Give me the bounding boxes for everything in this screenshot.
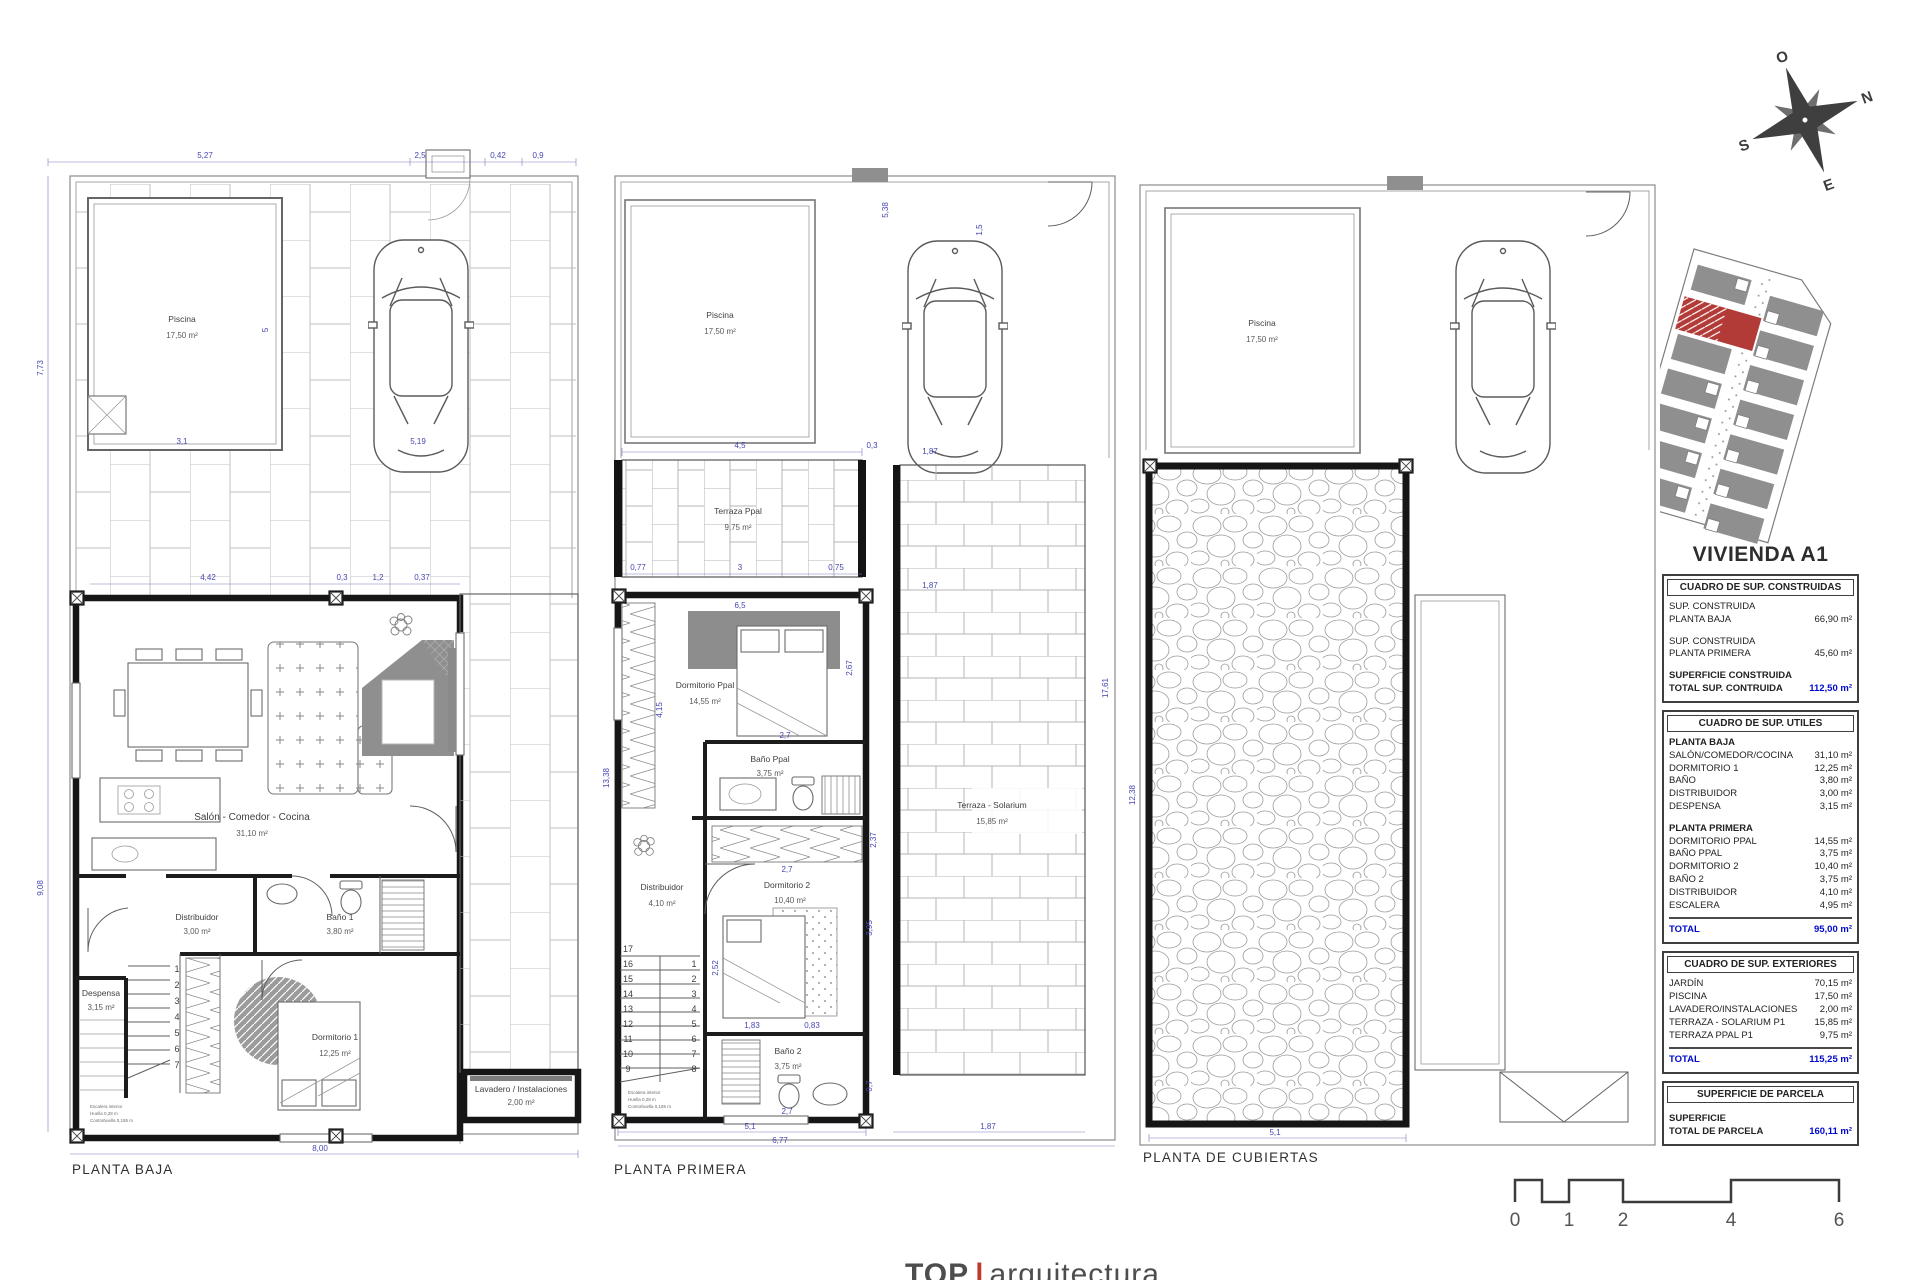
- svg-text:8,00: 8,00: [312, 1144, 328, 1153]
- svg-text:Dormitorio 2: Dormitorio 2: [764, 880, 811, 890]
- svg-text:13: 13: [623, 1004, 633, 1014]
- floorplan-planta-primera: Piscina 17,50 m² Terraza Ppal 9,75 m² Te…: [600, 128, 1130, 1188]
- svg-text:0,3: 0,3: [866, 441, 878, 450]
- svg-text:3,75 m²: 3,75 m²: [756, 769, 783, 778]
- row-label: DISTRIBUIDOR: [1669, 887, 1737, 900]
- svg-text:0,77: 0,77: [630, 563, 646, 572]
- total-label: SUPERFICIE CONSTRUIDA: [1669, 670, 1792, 683]
- svg-text:4,42: 4,42: [200, 573, 216, 582]
- svg-text:17,61: 17,61: [1101, 677, 1110, 698]
- pillar-post: [860, 590, 873, 603]
- floorplan-planta-cubiertas: Piscina 17,50 m² 12,38 5,1 PLANTA DE CUB…: [1125, 150, 1670, 1180]
- svg-text:2,7: 2,7: [781, 1107, 793, 1116]
- svg-text:17: 17: [623, 944, 633, 954]
- row-label: JARDÍN: [1669, 978, 1703, 991]
- dormitorio1-label: Dormitorio 1: [312, 1032, 359, 1042]
- row-label: BAÑO: [1669, 775, 1696, 788]
- svg-text:0,3: 0,3: [336, 573, 348, 582]
- total-value: 95,00 m²: [1814, 924, 1852, 937]
- row-label: SALÓN/COMEDOR/COCINA: [1669, 750, 1793, 763]
- svg-text:1,87: 1,87: [980, 1122, 996, 1131]
- row-label: TERRAZA PPAL P1: [1669, 1030, 1753, 1043]
- svg-text:6: 6: [174, 1044, 179, 1054]
- compass-south: S: [1737, 136, 1752, 155]
- window: [724, 1116, 808, 1124]
- row-value: 17,50 m²: [1815, 991, 1853, 1004]
- svg-text:5,27: 5,27: [197, 151, 213, 160]
- pillar-post: [330, 1130, 343, 1143]
- pillar-post: [613, 1115, 626, 1128]
- firm-logo: TOP|arquitectura: [905, 1258, 1160, 1280]
- svg-text:Dormitorio Ppal: Dormitorio Ppal: [676, 680, 735, 690]
- pillar-post: [330, 592, 343, 605]
- distribuidor-label: Distribuidor: [176, 912, 219, 922]
- svg-text:10,40 m²: 10,40 m²: [774, 896, 806, 905]
- door-arc-entry: [1586, 192, 1630, 236]
- table-constructed: CUADRO DE SUP. CONSTRUIDAS SUP. CONSTRUI…: [1662, 574, 1859, 703]
- group-title: PLANTA PRIMERA: [1667, 823, 1854, 836]
- row-value: 2,00 m²: [1820, 1004, 1852, 1017]
- svg-text:7: 7: [174, 1060, 179, 1070]
- drawing-sheet: Piscina 17,50 m² 5,27 2,5 0,42 0,9 4,42 …: [0, 0, 1920, 1280]
- svg-text:16: 16: [623, 959, 633, 969]
- svg-text:5,1: 5,1: [744, 1122, 756, 1131]
- room-dormitorio2: Dormitorio 2 10,40 m²: [723, 880, 837, 1018]
- row-value: 31,10 m²: [1815, 750, 1853, 763]
- table-constructed-header: CUADRO DE SUP. CONSTRUIDAS: [1667, 579, 1854, 596]
- svg-text:6,5: 6,5: [734, 601, 746, 610]
- total-label: TOTAL SUP. CONTRUIDA: [1669, 683, 1783, 696]
- door-arc-entry: [1048, 182, 1092, 226]
- row-value: 14,55 m²: [1815, 836, 1853, 849]
- svg-text:4: 4: [174, 1012, 179, 1022]
- svg-text:5: 5: [691, 1019, 696, 1029]
- svg-text:0,37: 0,37: [414, 573, 430, 582]
- pool-label: Piscina: [168, 314, 196, 324]
- svg-text:1,87: 1,87: [922, 581, 938, 590]
- wardrobe: [622, 603, 655, 808]
- svg-text:9,08: 9,08: [36, 880, 45, 896]
- svg-text:Contrahuella 0,185 m: Contrahuella 0,185 m: [90, 1118, 133, 1123]
- svg-text:1: 1: [174, 964, 179, 974]
- gate-box: [852, 168, 888, 182]
- row-value: 10,40 m²: [1815, 861, 1853, 874]
- scale-label: 1: [1564, 1210, 1575, 1231]
- row-value: 4,95 m²: [1820, 900, 1852, 913]
- salon-label: Salón - Comedor - Cocina: [194, 812, 310, 823]
- svg-text:13,38: 13,38: [602, 767, 611, 788]
- room-terraza-ppal: Terraza Ppal 9,75 m²: [614, 460, 866, 577]
- svg-text:0,83: 0,83: [804, 1021, 820, 1030]
- unit-title: VIVIENDA A1: [1662, 543, 1859, 567]
- svg-text:2: 2: [174, 980, 179, 990]
- svg-text:11: 11: [623, 1034, 632, 1044]
- staircase: 17 16 15 14 13 12 11 10 9 1 2 3 4 5 6 7 …: [620, 944, 700, 1109]
- svg-text:14: 14: [623, 989, 633, 999]
- lavadero-label: Lavadero / Instalaciones: [475, 1084, 567, 1094]
- site-location-map: [1660, 235, 1910, 545]
- svg-text:0,9: 0,9: [532, 151, 544, 160]
- total-value: 115,25 m²: [1809, 1054, 1852, 1067]
- table-parcela-header: SUPERFICIE DE PARCELA: [1667, 1086, 1854, 1103]
- svg-text:Terraza Ppal: Terraza Ppal: [714, 506, 762, 516]
- counter-sink: [92, 838, 216, 870]
- row-label: DISTRIBUIDOR: [1669, 788, 1737, 801]
- row-value: 3,15 m²: [1820, 801, 1852, 814]
- scale-label: 0: [1510, 1210, 1521, 1231]
- svg-text:5,38: 5,38: [881, 202, 890, 218]
- group-title: PLANTA BAJA: [1667, 737, 1854, 750]
- svg-text:2: 2: [691, 974, 696, 984]
- svg-text:Piscina: Piscina: [706, 310, 734, 320]
- svg-text:3,95: 3,95: [865, 920, 874, 936]
- svg-text:1: 1: [691, 959, 696, 969]
- despensa-area: 3,15 m²: [87, 1003, 114, 1012]
- total-label: SUPERFICIE: [1669, 1113, 1726, 1126]
- gate-box: [1387, 176, 1423, 190]
- area-summary-panel: VIVIENDA A1 CUADRO DE SUP. CONSTRUIDAS S…: [1662, 543, 1859, 1153]
- logo-top: TOP: [905, 1258, 969, 1280]
- svg-text:1,87: 1,87: [922, 447, 938, 456]
- pillar-post: [71, 592, 84, 605]
- svg-text:5,1: 5,1: [1269, 1128, 1281, 1137]
- svg-text:10: 10: [623, 1049, 633, 1059]
- svg-text:Huella 0,28 m: Huella 0,28 m: [628, 1097, 656, 1102]
- row-label: DORMITORIO 1: [1669, 763, 1739, 776]
- row-value: 15,85 m²: [1815, 1017, 1853, 1030]
- salon-area: 31,10 m²: [236, 829, 268, 838]
- pillar-post: [1144, 460, 1157, 473]
- svg-text:Baño Ppal: Baño Ppal: [750, 754, 789, 764]
- svg-text:2,5: 2,5: [414, 151, 426, 160]
- scale-bar: 0 1 2 4 6: [1505, 1162, 1865, 1237]
- car-icon: [1450, 241, 1556, 473]
- svg-text:1,5: 1,5: [975, 224, 984, 236]
- svg-text:3: 3: [174, 996, 179, 1006]
- row-value: 4,10 m²: [1820, 887, 1852, 900]
- compass-rose: O N E S: [1735, 42, 1875, 192]
- svg-text:17,50 m²: 17,50 m²: [1246, 335, 1278, 344]
- svg-text:12,38: 12,38: [1128, 784, 1137, 805]
- gravel-roof: [1149, 466, 1406, 1124]
- scale-label: 4: [1726, 1210, 1737, 1231]
- row-label: PISCINA: [1669, 991, 1707, 1004]
- table-utiles-header: CUADRO DE SUP. UTILES: [1667, 715, 1854, 732]
- svg-text:5,19: 5,19: [410, 437, 426, 446]
- svg-text:4,5: 4,5: [734, 441, 746, 450]
- despensa-label: Despensa: [82, 988, 121, 998]
- compass-north: N: [1859, 88, 1875, 108]
- row-value: 3,80 m²: [1820, 775, 1852, 788]
- svg-text:Escalera interior: Escalera interior: [628, 1090, 661, 1095]
- row-label: ESCALERA: [1669, 900, 1720, 913]
- table-parcela: SUPERFICIE DE PARCELA SUPERFICIE TOTAL D…: [1662, 1081, 1859, 1146]
- total-value: 112,50 m²: [1809, 683, 1852, 696]
- row-value: 3,00 m²: [1820, 788, 1852, 801]
- svg-text:7,73: 7,73: [36, 360, 45, 376]
- scale-label: 6: [1834, 1210, 1845, 1231]
- pool: Piscina 17,50 m²: [1165, 208, 1360, 453]
- svg-text:4,10 m²: 4,10 m²: [648, 899, 675, 908]
- svg-text:3: 3: [691, 989, 696, 999]
- svg-text:9: 9: [625, 1064, 630, 1074]
- svg-text:3: 3: [738, 563, 743, 572]
- logo-separator: |: [969, 1258, 989, 1280]
- lower-roof: [1415, 595, 1505, 1070]
- row-value: 12,25 m²: [1815, 763, 1853, 776]
- row-value: 3,75 m²: [1820, 848, 1852, 861]
- pool: Piscina 17,50 m²: [625, 200, 815, 443]
- svg-text:Distribuidor: Distribuidor: [641, 882, 684, 892]
- svg-text:5: 5: [261, 327, 270, 332]
- svg-text:Terraza - Solarium: Terraza - Solarium: [957, 800, 1026, 810]
- svg-text:2,37: 2,37: [869, 832, 878, 848]
- svg-text:Piscina: Piscina: [1248, 318, 1276, 328]
- caption-planta-cubiertas: PLANTA DE CUBIERTAS: [1143, 1150, 1319, 1165]
- row-label: DORMITORIO PPAL: [1669, 836, 1757, 849]
- svg-text:6: 6: [691, 1034, 696, 1044]
- total-label: TOTAL: [1669, 1054, 1700, 1067]
- svg-text:12: 12: [623, 1019, 633, 1029]
- svg-text:2,7: 2,7: [779, 731, 791, 740]
- row-label: TERRAZA - SOLARIUM P1: [1669, 1017, 1785, 1030]
- svg-text:14,55 m²: 14,55 m²: [689, 697, 721, 706]
- drain: [88, 396, 126, 434]
- svg-text:9,75 m²: 9,75 m²: [724, 523, 751, 532]
- svg-text:15,85 m²: 15,85 m²: [976, 817, 1008, 826]
- pillar-post: [860, 1115, 873, 1128]
- driveway: [460, 594, 578, 1072]
- svg-text:17,50 m²: 17,50 m²: [704, 327, 736, 336]
- pillar-post: [1400, 460, 1413, 473]
- pillar-post: [71, 1130, 84, 1143]
- room-bano-ppal: Baño Ppal 3,75 m²: [692, 742, 866, 818]
- logo-arquitectura: arquitectura: [990, 1258, 1160, 1280]
- dormitorio1-area: 12,25 m²: [319, 1049, 351, 1058]
- total-value: 160,11 m²: [1809, 1126, 1852, 1139]
- row-label: PLANTA PRIMERA: [1669, 648, 1751, 661]
- dining-table: [114, 649, 262, 761]
- scale-label: 2: [1618, 1210, 1629, 1231]
- table-exteriores-header: CUADRO DE SUP. EXTERIORES: [1667, 956, 1854, 973]
- table-utiles: CUADRO DE SUP. UTILES PLANTA BAJA SALÓN/…: [1662, 710, 1859, 944]
- svg-text:4: 4: [691, 1004, 696, 1014]
- svg-text:0,7: 0,7: [865, 1080, 874, 1092]
- row-label: LAVADERO/INSTALACIONES: [1669, 1004, 1797, 1017]
- wardrobe: [186, 958, 220, 1093]
- row-value: 9,75 m²: [1820, 1030, 1852, 1043]
- bed: [737, 626, 827, 736]
- svg-text:Escalera interior: Escalera interior: [90, 1104, 123, 1109]
- room-bano2: Baño 2 3,75 m²: [705, 1034, 866, 1108]
- svg-text:1,2: 1,2: [372, 573, 384, 582]
- row-value: 3,75 m²: [1820, 874, 1852, 887]
- distribuidor-area: 3,00 m²: [183, 927, 210, 936]
- row-value: 66,90 m²: [1815, 614, 1853, 627]
- door-arc-dorm2: [705, 864, 755, 914]
- svg-text:2,52: 2,52: [711, 960, 720, 976]
- svg-text:Baño 2: Baño 2: [775, 1046, 802, 1056]
- svg-text:3,1: 3,1: [176, 437, 188, 446]
- row-label: BAÑO 2: [1669, 874, 1704, 887]
- valley-roof: [1500, 1072, 1628, 1122]
- svg-text:2,7: 2,7: [781, 865, 793, 874]
- plant-icon: [634, 835, 655, 855]
- row-label: SUP. CONSTRUIDA: [1669, 601, 1755, 614]
- row-label: DESPENSA: [1669, 801, 1721, 814]
- bed: [723, 916, 805, 1018]
- svg-text:3,75 m²: 3,75 m²: [774, 1062, 801, 1071]
- compass-west: O: [1774, 47, 1791, 67]
- pool-area: 17,50 m²: [166, 331, 198, 340]
- caption-planta-primera: PLANTA PRIMERA: [614, 1162, 747, 1177]
- car-icon: [902, 241, 1008, 473]
- floorplan-planta-baja: Piscina 17,50 m² 5,27 2,5 0,42 0,9 4,42 …: [30, 128, 605, 1188]
- svg-text:2,67: 2,67: [845, 660, 854, 676]
- row-value: 45,60 m²: [1815, 648, 1853, 661]
- svg-text:0,42: 0,42: [490, 151, 506, 160]
- total-label: TOTAL DE PARCELA: [1669, 1126, 1763, 1139]
- svg-text:5: 5: [174, 1028, 179, 1038]
- row-label: BAÑO PPAL: [1669, 848, 1722, 861]
- wardrobe: [712, 826, 862, 862]
- row-label: PLANTA BAJA: [1669, 614, 1731, 627]
- svg-text:8: 8: [691, 1064, 696, 1074]
- bano1-area: 3,80 m²: [326, 927, 353, 936]
- svg-text:Huella 0,28 m: Huella 0,28 m: [90, 1111, 118, 1116]
- caption-planta-baja: PLANTA BAJA: [72, 1162, 173, 1177]
- row-label: DORMITORIO 2: [1669, 861, 1739, 874]
- room-solarium: Terraza - Solarium 15,85 m²: [893, 465, 1085, 1075]
- room-lavadero: Lavadero / Instalaciones 2,00 m²: [464, 1072, 578, 1120]
- svg-text:4,15: 4,15: [655, 702, 664, 718]
- svg-text:Contrahuella 0,185 m: Contrahuella 0,185 m: [628, 1104, 671, 1109]
- pillar-post: [613, 590, 626, 603]
- compass-east: E: [1821, 176, 1836, 192]
- svg-text:6,77: 6,77: [772, 1136, 788, 1145]
- row-label: SUP. CONSTRUIDA: [1669, 636, 1755, 649]
- table-exteriores: CUADRO DE SUP. EXTERIORES JARDÍN70,15 m²…: [1662, 951, 1859, 1074]
- window: [614, 628, 622, 720]
- svg-text:0,75: 0,75: [828, 563, 844, 572]
- lavadero-area: 2,00 m²: [507, 1098, 534, 1107]
- svg-text:1,83: 1,83: [744, 1021, 760, 1030]
- svg-text:7: 7: [691, 1049, 696, 1059]
- bano1-label: Baño 1: [327, 912, 354, 922]
- total-label: TOTAL: [1669, 924, 1700, 937]
- row-value: 70,15 m²: [1815, 978, 1853, 991]
- svg-text:15: 15: [623, 974, 633, 984]
